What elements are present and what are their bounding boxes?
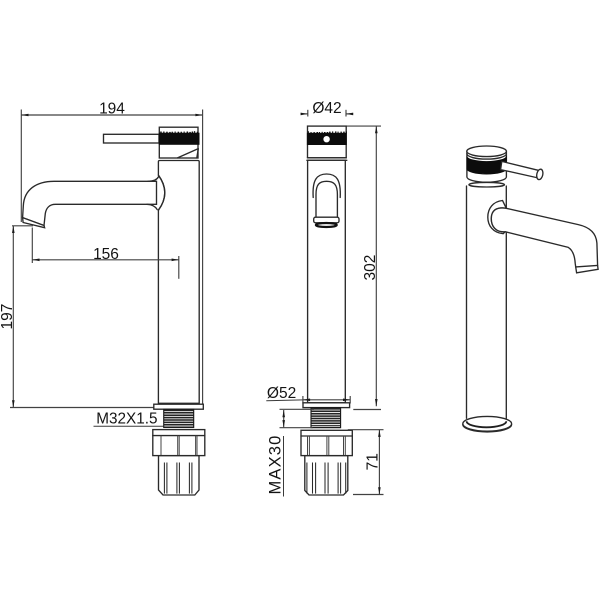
svg-text:156: 156 xyxy=(93,246,119,263)
svg-text:302: 302 xyxy=(362,255,379,281)
svg-text:194: 194 xyxy=(99,101,125,118)
svg-text:71: 71 xyxy=(364,453,381,470)
svg-text:Ø52: Ø52 xyxy=(267,385,296,402)
svg-text:M32X1.5: M32X1.5 xyxy=(96,410,157,427)
svg-text:Ø42: Ø42 xyxy=(312,100,341,117)
svg-text:197: 197 xyxy=(0,304,16,330)
svg-text:MAX30: MAX30 xyxy=(267,434,285,494)
